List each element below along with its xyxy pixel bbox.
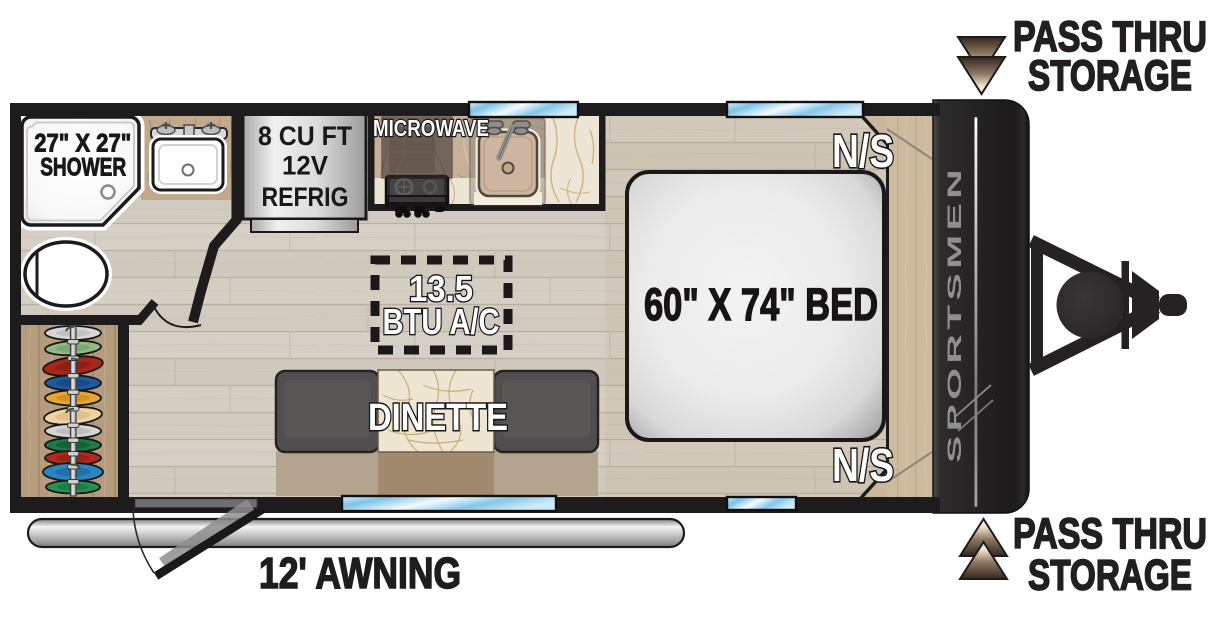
svg-text:12V: 12V — [282, 151, 328, 181]
svg-text:N/S: N/S — [832, 125, 894, 177]
svg-text:MICROWAVE: MICROWAVE — [373, 115, 489, 141]
svg-text:STORAGE: STORAGE — [1028, 552, 1192, 600]
svg-text:60" X 74" BED: 60" X 74" BED — [644, 279, 878, 330]
svg-text:DINETTE: DINETTE — [368, 397, 508, 439]
svg-text:12' AWNING: 12' AWNING — [259, 549, 461, 598]
svg-text:REFRIG: REFRIG — [262, 182, 349, 212]
svg-text:SPORTSMEN: SPORTSMEN — [945, 165, 966, 463]
svg-text:SHOWER: SHOWER — [40, 153, 126, 181]
svg-text:BTU A/C: BTU A/C — [383, 301, 500, 342]
svg-text:N/S: N/S — [832, 439, 894, 491]
svg-text:STORAGE: STORAGE — [1028, 52, 1192, 100]
svg-text:8 CU FT: 8 CU FT — [258, 121, 352, 151]
